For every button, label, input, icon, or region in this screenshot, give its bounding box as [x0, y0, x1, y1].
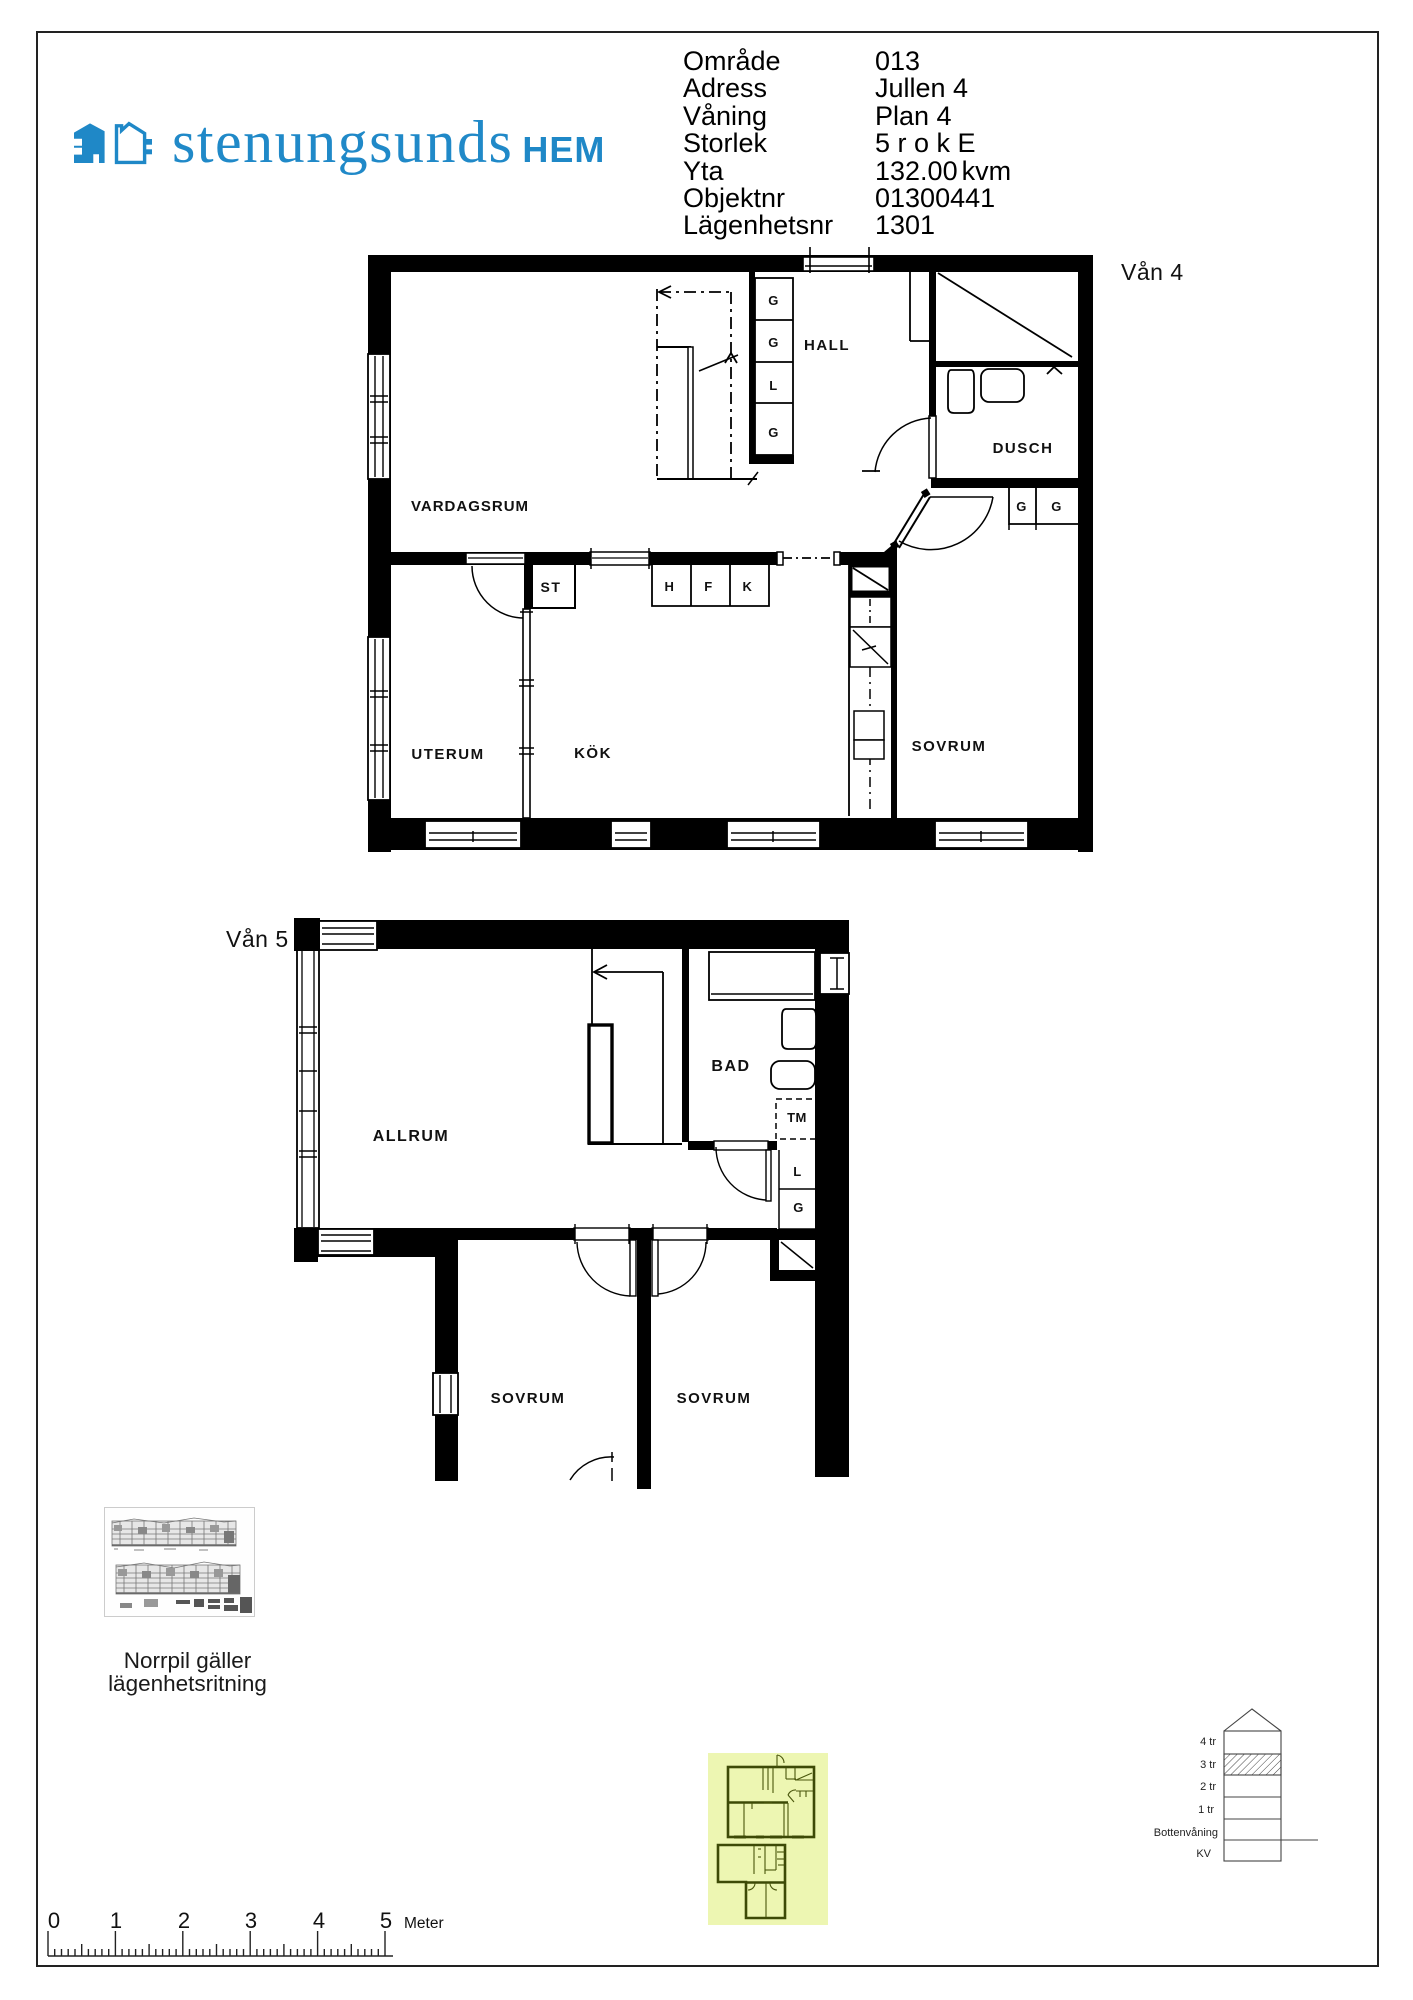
svg-text:KV: KV	[1196, 1848, 1211, 1860]
svg-text:G: G	[1051, 499, 1063, 514]
svg-text:K: K	[743, 579, 754, 594]
svg-text:ST: ST	[541, 579, 562, 595]
svg-text:3 tr: 3 tr	[1200, 1759, 1216, 1771]
svg-text:L: L	[769, 378, 778, 393]
svg-text:Meter: Meter	[404, 1915, 444, 1932]
svg-text:G: G	[793, 1200, 805, 1215]
svg-text:KÖK: KÖK	[574, 745, 612, 762]
svg-text:G: G	[768, 335, 780, 350]
svg-text:L: L	[793, 1164, 802, 1179]
svg-text:G: G	[768, 293, 780, 308]
svg-text:4 tr: 4 tr	[1200, 1736, 1216, 1748]
svg-text:2: 2	[178, 1908, 190, 1933]
svg-text:Bottenvåning: Bottenvåning	[1154, 1827, 1218, 1839]
svg-text:G: G	[1016, 499, 1028, 514]
svg-text:DUSCH: DUSCH	[993, 440, 1054, 457]
svg-text:SOVRUM: SOVRUM	[677, 1390, 752, 1407]
svg-text:SOVRUM: SOVRUM	[912, 738, 987, 755]
svg-text:BAD: BAD	[711, 1058, 750, 1075]
svg-text:Vån 4: Vån 4	[1121, 259, 1184, 285]
svg-text:ALLRUM: ALLRUM	[373, 1128, 450, 1145]
svg-text:VARDAGSRUM: VARDAGSRUM	[411, 498, 529, 515]
svg-text:UTERUM: UTERUM	[411, 746, 484, 763]
svg-text:Vån 5: Vån 5	[226, 926, 289, 952]
svg-text:SOVRUM: SOVRUM	[491, 1390, 566, 1407]
svg-text:0: 0	[48, 1908, 60, 1933]
svg-text:TM: TM	[787, 1110, 807, 1125]
svg-text:G: G	[768, 425, 780, 440]
svg-text:F: F	[704, 579, 713, 594]
svg-text:1: 1	[110, 1908, 122, 1933]
svg-text:5: 5	[380, 1908, 392, 1933]
svg-text:3: 3	[245, 1908, 257, 1933]
svg-text:HALL: HALL	[804, 337, 850, 354]
svg-text:1 tr: 1 tr	[1198, 1804, 1214, 1816]
svg-text:H: H	[665, 579, 676, 594]
svg-text:4: 4	[313, 1908, 325, 1933]
svg-text:2 tr: 2 tr	[1200, 1781, 1216, 1793]
